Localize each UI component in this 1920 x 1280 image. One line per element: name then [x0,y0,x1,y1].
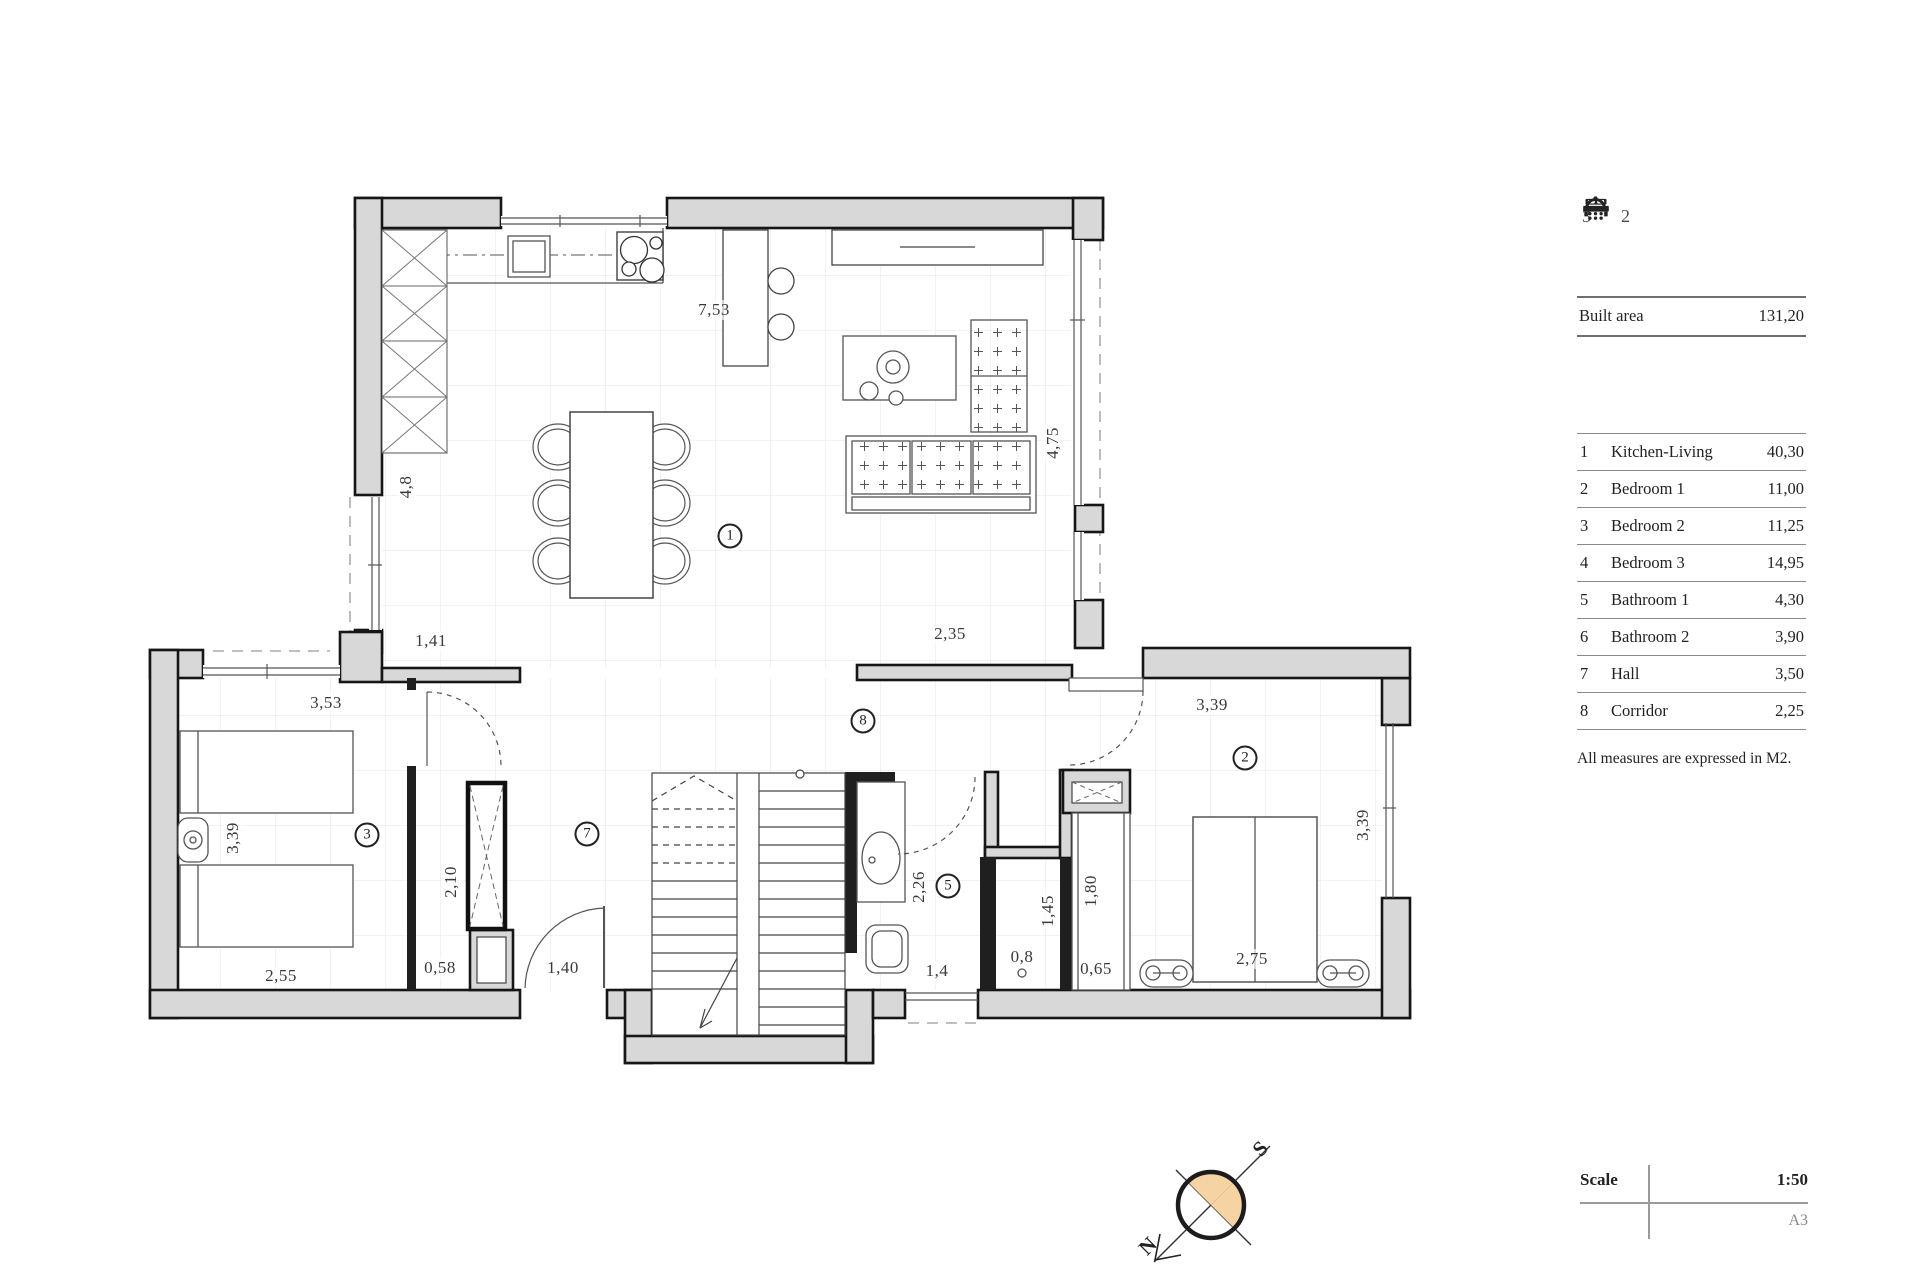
legend-row: 8Corridor2,25 [1577,693,1806,730]
floorplan-sheet: N S 7,534,754,81,412,353,533,393,393,392… [0,0,1920,1280]
room-number-marker: 8 [851,709,876,734]
built-area-label: Built area [1579,306,1644,326]
room-number-marker: 3 [355,823,380,848]
built-area-value: 131,20 [1759,306,1804,326]
room-number-marker: 2 [1233,746,1258,771]
legend-row: 2Bedroom 111,00 [1577,471,1806,508]
legend-table-rows: 1Kitchen-Living40,302Bedroom 111,003Bedr… [1577,434,1806,730]
legend-row: 4Bedroom 314,95 [1577,545,1806,582]
sheet-size: A3 [1580,1212,1808,1230]
room-number-marker: 5 [936,874,961,899]
scale-value: 1:50 [1777,1170,1808,1190]
legend-row: 6Bathroom 23,90 [1577,619,1806,656]
legend-table: 1Kitchen-Living40,302Bedroom 111,003Bedr… [1577,433,1806,730]
legend-row: 1Kitchen-Living40,30 [1577,434,1806,471]
legend-row: 5Bathroom 14,30 [1577,582,1806,619]
scale-row: Scale 1:50 [1580,1170,1808,1190]
legend-row: 7Hall3,50 [1577,656,1806,693]
bathroom-count: 2 [1621,206,1630,227]
built-area-row: Built area 131,20 [1577,298,1806,335]
room-number-marker: 1 [718,524,743,549]
measures-note: All measures are expressed in M2. [1577,750,1837,768]
built-area-table: Built area 131,20 [1577,296,1806,337]
summary-icons: 3 2 [1582,196,1782,236]
shower-icon [1582,196,1609,220]
scale-divider-horizontal [1580,1202,1808,1204]
legend-row: 3Bedroom 211,25 [1577,508,1806,545]
room-number-marker: 7 [575,822,600,847]
scale-label: Scale [1580,1170,1618,1190]
